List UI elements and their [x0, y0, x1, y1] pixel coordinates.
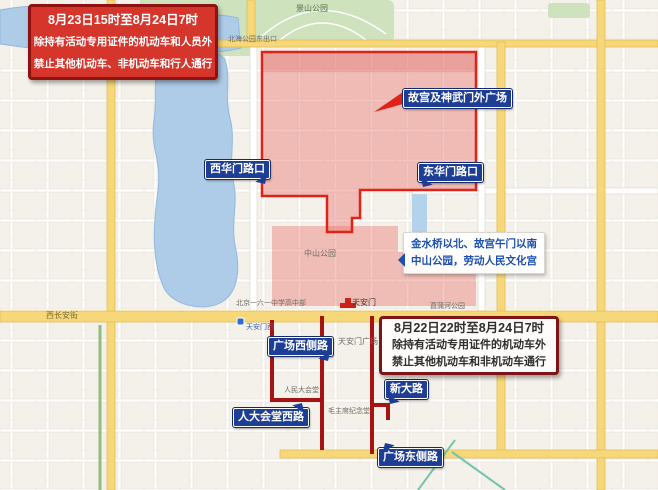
- sign-xihuamen-intersection: 西华门路口: [205, 160, 270, 179]
- restricted-zone-shenwumen-band: [262, 52, 476, 72]
- park-small-ne: [548, 3, 590, 18]
- sign-square-east-road: 广场东侧路: [378, 448, 443, 467]
- area-note-line: 中山公园，劳动人民文化宫: [406, 253, 542, 270]
- map-label: 北京一六一中学高中部: [236, 300, 306, 307]
- notice-pedestrian-restriction: 8月23日15时至8月24日7时 除持有活动专用证件的机动车和人员外 禁止其他机…: [28, 4, 218, 80]
- notice-line: 除持有活动专用证件的机动车和人员外: [32, 31, 214, 53]
- area-note-line: 金水桥以北、故宫午门以南: [406, 236, 542, 253]
- map-label: 景山公园: [296, 5, 328, 13]
- sign-label: 故宫及神武门外广场: [408, 92, 507, 104]
- map-label: 天安门: [352, 299, 376, 307]
- notice-vehicle-restriction: 8月22日22时至8月24日7时 除持有活动专用证件的机动车外 禁止其他机动车和…: [379, 316, 559, 375]
- sign-label: 广场东侧路: [383, 451, 438, 463]
- sign-label: 新大路: [390, 383, 423, 395]
- sign-label: 广场西侧路: [273, 340, 328, 352]
- sign-donghuamen-intersection: 东华门路口: [418, 163, 483, 182]
- notice-line: 8月22日22时至8月24日7时: [383, 320, 555, 337]
- map-label: 菖蒲河公园: [430, 303, 465, 310]
- road-changan-ave: [0, 311, 658, 322]
- map-label: 中山公园: [304, 250, 336, 258]
- sign-label: 人大会堂西路: [238, 411, 304, 423]
- notice-line: 禁止其他机动车和非机动车通行: [383, 354, 555, 371]
- road-vertical-east2: [597, 0, 605, 490]
- sign-label: 西华门路口: [210, 163, 265, 175]
- metro-station-icon: [237, 318, 244, 325]
- area-note-pointer: [391, 253, 405, 267]
- map-label: 毛主席纪念堂: [328, 408, 370, 415]
- area-note-jinshuiqiao: 金水桥以北、故宫午门以南 中山公园，劳动人民文化宫: [403, 232, 545, 274]
- map-label: 北海公园东出口: [228, 36, 277, 43]
- road-qiansanmen-st: [280, 450, 658, 458]
- map-label: 人民大会堂: [284, 387, 319, 394]
- map-label: 天安门西: [246, 324, 274, 331]
- map-label: 西长安街: [46, 312, 78, 320]
- sign-square-west-road: 广场西侧路: [268, 337, 333, 356]
- sign-xindalu: 新大路: [385, 380, 428, 399]
- sign-gugong-shenwumen-square: 故宫及神武门外广场: [403, 89, 512, 108]
- notice-line: 除持有活动专用证件的机动车外: [383, 337, 555, 354]
- notice-line: 8月23日15时至8月24日7时: [32, 9, 214, 31]
- traffic-restriction-map: 景山公园 北海公园东出口 西长安街 天安门西 天安门广场 中山公园 天安门 毛主…: [0, 0, 658, 490]
- sign-great-hall-west-road: 人大会堂西路: [233, 408, 309, 427]
- notice-line: 禁止其他机动车、非机动车和行人通行: [32, 53, 214, 75]
- sign-label: 东华门路口: [423, 166, 478, 178]
- map-label: 天安门广场: [338, 338, 378, 346]
